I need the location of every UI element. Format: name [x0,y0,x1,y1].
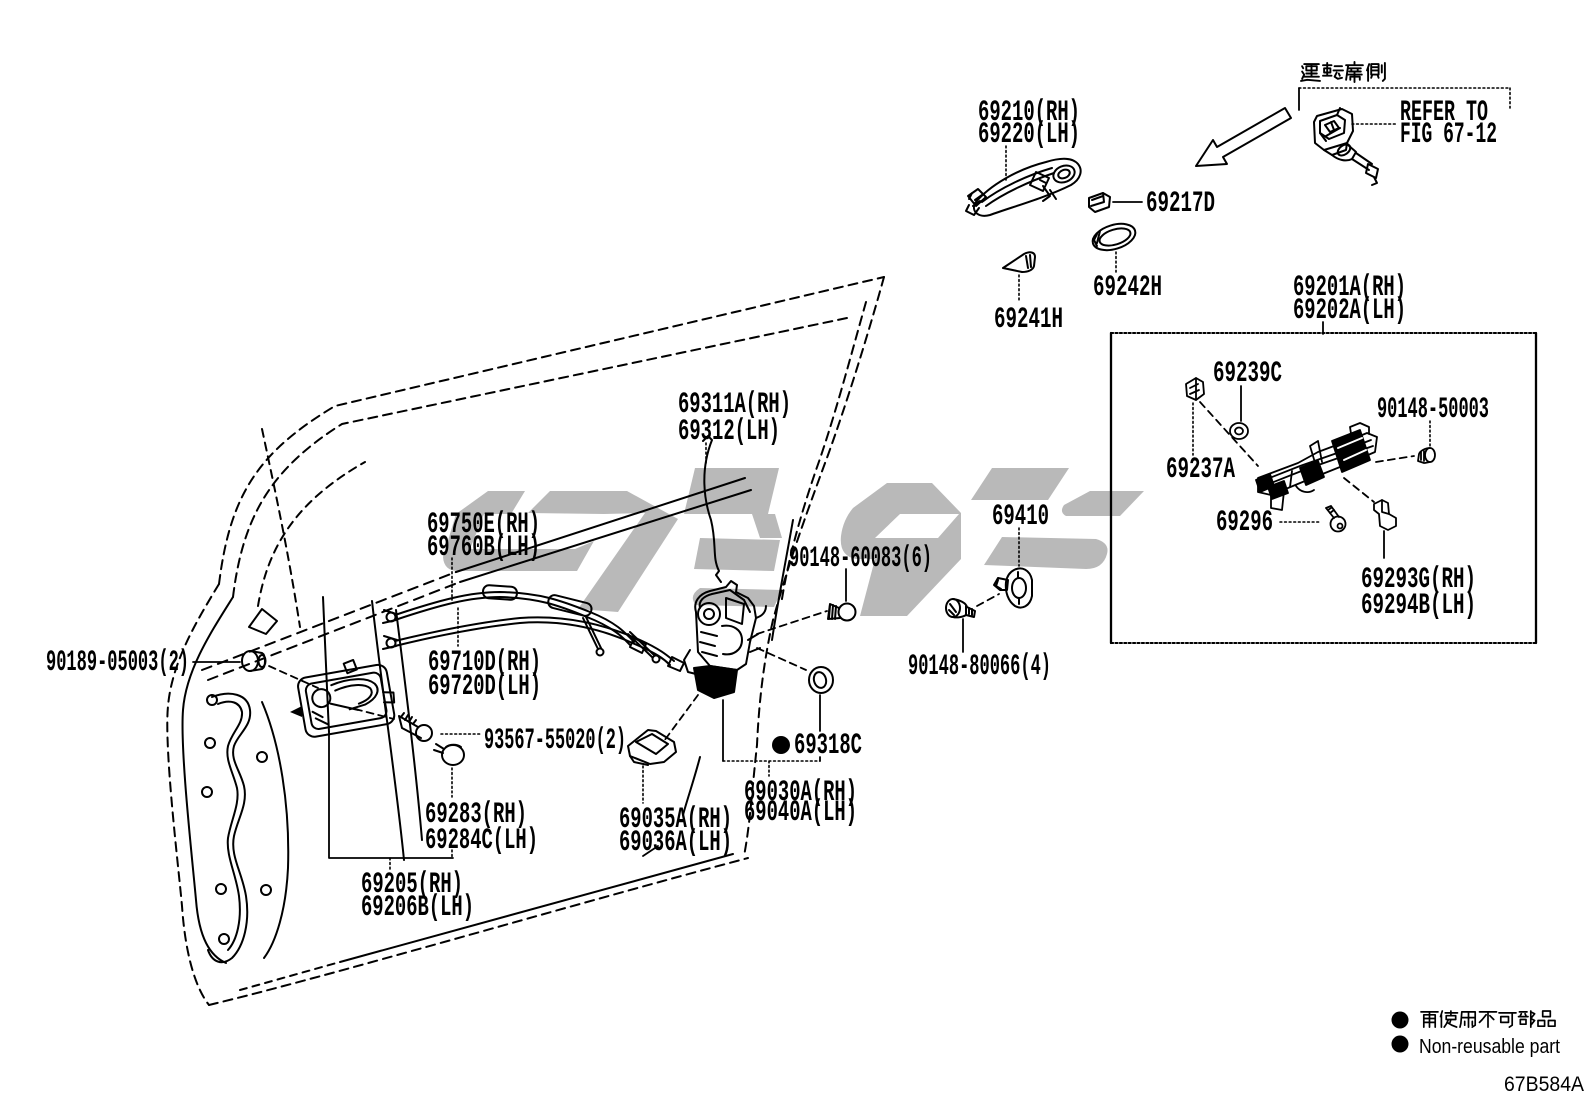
svg-text:90148-60083(6): 90148-60083(6) [789,542,932,576]
svg-text:69237A: 69237A [1166,453,1235,487]
svg-text:69239C: 69239C [1213,357,1282,391]
svg-text:90189-05003(2): 90189-05003(2) [46,646,189,680]
svg-text:69294B(LH): 69294B(LH) [1361,589,1476,623]
svg-text:69040A(LH): 69040A(LH) [744,796,857,830]
svg-text:Non-reusable part: Non-reusable part [1419,1036,1560,1058]
svg-text:69312(LH): 69312(LH) [678,415,780,449]
svg-text:69296: 69296 [1216,506,1273,540]
svg-text:69720D(LH): 69720D(LH) [428,670,541,704]
svg-text:69284C(LH): 69284C(LH) [425,824,538,858]
svg-text:69241H: 69241H [994,303,1063,337]
svg-text:FIG 67-12: FIG 67-12 [1400,118,1497,152]
svg-text:69318C: 69318C [794,729,862,763]
svg-text:69036A(LH): 69036A(LH) [619,826,732,860]
svg-text:69220(LH): 69220(LH) [978,118,1080,152]
svg-text:69206B(LH): 69206B(LH) [361,891,474,925]
svg-text:69217D: 69217D [1146,187,1215,221]
svg-text:90148-80066(4): 90148-80066(4) [908,650,1051,684]
svg-text:69202A(LH): 69202A(LH) [1293,294,1406,328]
svg-text:69242H: 69242H [1093,271,1162,305]
svg-text:67B584A: 67B584A [1504,1073,1584,1096]
svg-text:69760B(LH): 69760B(LH) [427,531,540,565]
svg-text:90148-50003: 90148-50003 [1377,393,1489,427]
svg-text:93567-55020(2): 93567-55020(2) [484,724,626,758]
svg-text:69410: 69410 [992,500,1049,534]
